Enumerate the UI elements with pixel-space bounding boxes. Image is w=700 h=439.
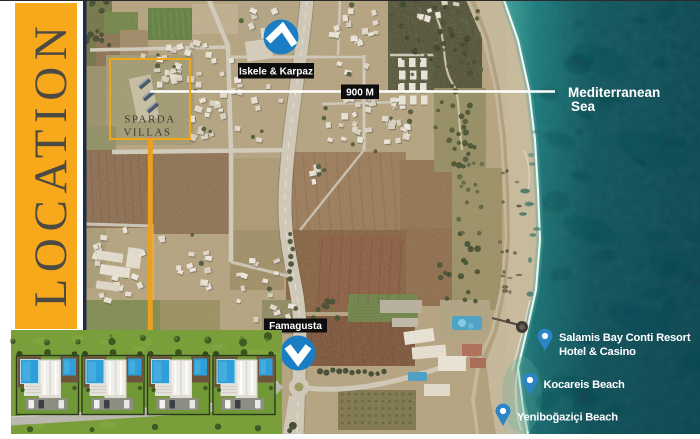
- svg-text:900 M: 900 M: [346, 88, 374, 99]
- svg-text:SPARDA: SPARDA: [124, 114, 175, 126]
- svg-text:Mediterranean: Mediterranean: [568, 85, 660, 100]
- svg-text:Hotel & Casino: Hotel & Casino: [559, 346, 636, 358]
- svg-text:VILLAS: VILLAS: [123, 127, 171, 139]
- svg-text:Kocareis Beach: Kocareis Beach: [544, 379, 626, 391]
- svg-text:Sea: Sea: [571, 99, 596, 114]
- svg-text:Iskele & Karpaz: Iskele & Karpaz: [239, 66, 313, 77]
- svg-text:Salamis Bay Conti Resort: Salamis Bay Conti Resort: [559, 332, 691, 344]
- svg-text:LOCATION: LOCATION: [25, 20, 77, 308]
- svg-text:Yeniboğaziçi Beach: Yeniboğaziçi Beach: [517, 412, 618, 424]
